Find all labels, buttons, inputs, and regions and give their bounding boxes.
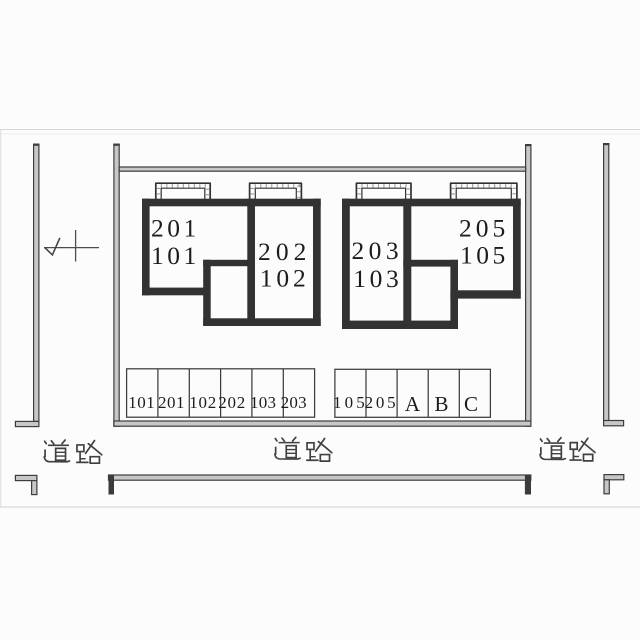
svg-text:B: B	[434, 392, 448, 416]
svg-text:202: 202	[218, 393, 245, 412]
svg-text:105: 105	[460, 241, 505, 270]
svg-text:203: 203	[281, 393, 307, 412]
svg-text:102: 102	[189, 393, 216, 412]
svg-text:105: 105	[333, 393, 365, 412]
svg-text:203: 203	[352, 236, 399, 265]
svg-text:201: 201	[151, 214, 196, 243]
svg-text:202: 202	[258, 237, 306, 266]
svg-text:103: 103	[353, 264, 399, 293]
svg-text:101: 101	[151, 241, 196, 270]
svg-text:103: 103	[250, 393, 276, 412]
svg-text:C: C	[464, 392, 478, 416]
svg-text:A: A	[405, 392, 421, 416]
svg-text:205: 205	[459, 214, 505, 243]
svg-text:205: 205	[365, 393, 396, 412]
svg-text:201: 201	[158, 393, 185, 412]
svg-text:101: 101	[128, 393, 155, 412]
svg-text:102: 102	[260, 264, 306, 293]
